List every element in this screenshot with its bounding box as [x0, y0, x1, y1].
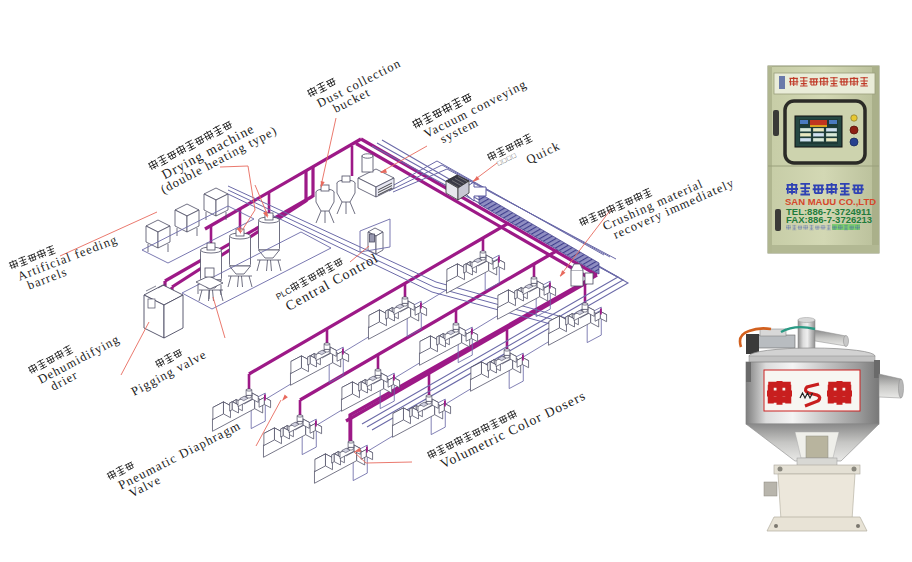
svg-text:FAX:886-7-3726213: FAX:886-7-3726213 — [786, 214, 872, 225]
